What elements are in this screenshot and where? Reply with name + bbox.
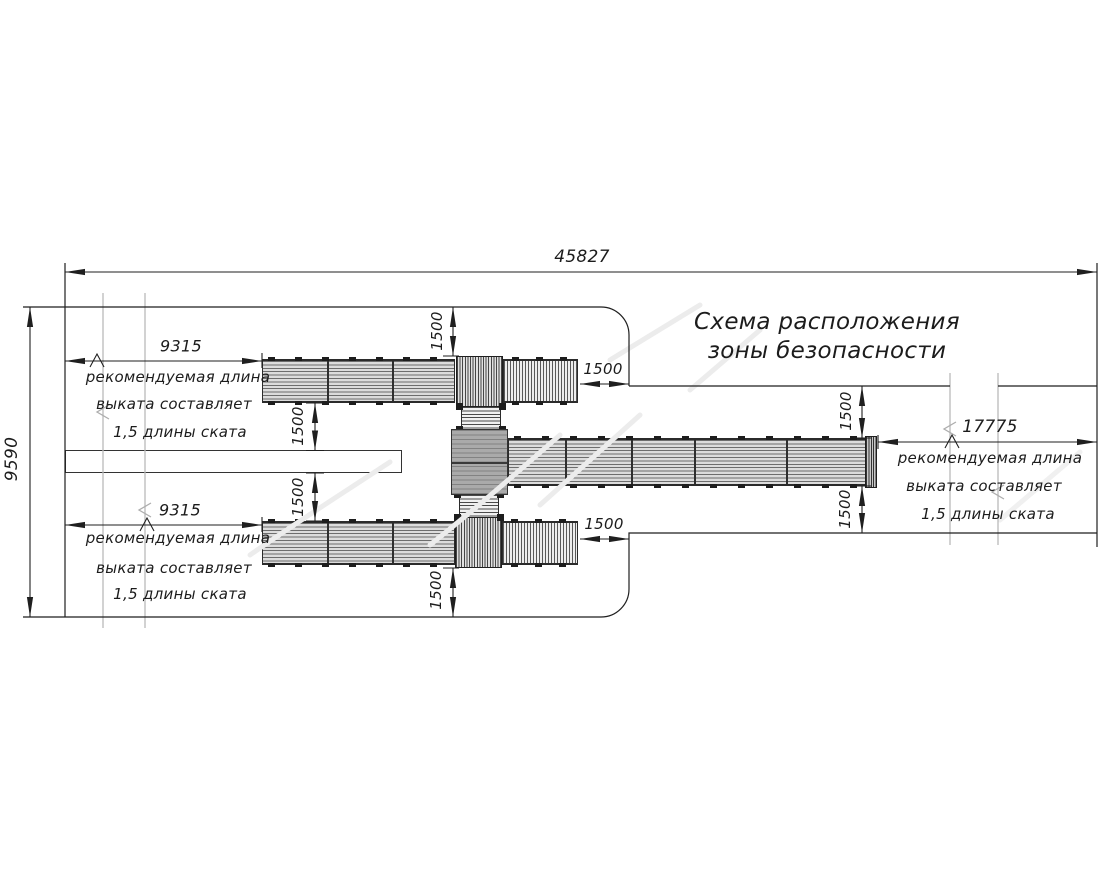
dim-total-height: 9590 [2, 437, 22, 481]
dimension-arrowhead [242, 358, 262, 364]
dimension-arrowhead [27, 597, 33, 617]
dimension-arrowhead [1077, 269, 1097, 275]
note-right-line3: 1,5 длины ската [921, 505, 1055, 523]
drawing-title-line2: зоны безопасности [708, 338, 946, 364]
dim-clearance-mid-upper: 1500 [289, 406, 307, 445]
dimension-arrowhead [859, 418, 865, 438]
dim-clearance-top-center: 1500 [428, 311, 446, 350]
note-top-left-line1: рекомендуемая длина [86, 368, 271, 386]
dimension-arrowhead [312, 431, 318, 451]
dimension-arrowhead [859, 486, 865, 506]
dimension-arrowhead [450, 307, 456, 327]
dim-clearance-bottom-center: 1500 [427, 570, 445, 609]
dim-left-runout-top: 9315 [160, 337, 202, 356]
note-right-line2: выката составляет [906, 477, 1062, 495]
dimension-arrowhead [65, 358, 85, 364]
dimension-arrowhead [312, 473, 318, 493]
dimension-arrowhead [27, 307, 33, 327]
note-bottom-left-line2: выката составляет [96, 559, 252, 577]
dimension-arrowhead [450, 597, 456, 617]
dimension-arrowhead [312, 403, 318, 423]
dim-clearance-bottom-right: 1500 [584, 515, 623, 533]
dimension-arrowhead [878, 439, 898, 445]
dimension-arrowhead [859, 386, 865, 406]
note-bottom-left-line3: 1,5 длины ската [113, 585, 247, 603]
note-top-left-line3: 1,5 длины ската [113, 423, 247, 441]
note-top-left-line2: выката составляет [96, 395, 252, 413]
dim-left-runout-bottom: 9315 [159, 501, 201, 520]
dimension-arrowhead [580, 536, 600, 542]
dimension-arrowhead [1077, 439, 1097, 445]
dimension-arrowhead [580, 381, 600, 387]
dimension-arrowhead [65, 522, 85, 528]
dimension-arrowhead [242, 522, 262, 528]
dim-clearance-right-lower: 1500 [836, 489, 854, 528]
drawing-title-line1: Схема расположения [694, 309, 960, 335]
dim-clearance-mid-lower: 1500 [289, 477, 307, 516]
dim-clearance-right-upper: 1500 [837, 391, 855, 430]
dimension-arrowhead [859, 513, 865, 533]
dim-total-width: 45827 [554, 247, 610, 267]
dimension-arrowhead [609, 536, 629, 542]
dim-right-runout: 17775 [962, 417, 1018, 437]
note-bottom-left-line1: рекомендуемая длина [86, 529, 271, 547]
dimension-arrowhead [450, 568, 456, 588]
safety-zone-drawing: Схема расположения зоны безопасности 458… [0, 0, 1110, 879]
note-right-line1: рекомендуемая длина [898, 449, 1083, 467]
dimension-arrowhead [609, 381, 629, 387]
dimension-arrowhead [65, 269, 85, 275]
dim-clearance-top-right: 1500 [583, 360, 622, 378]
dimension-arrowhead [450, 336, 456, 356]
